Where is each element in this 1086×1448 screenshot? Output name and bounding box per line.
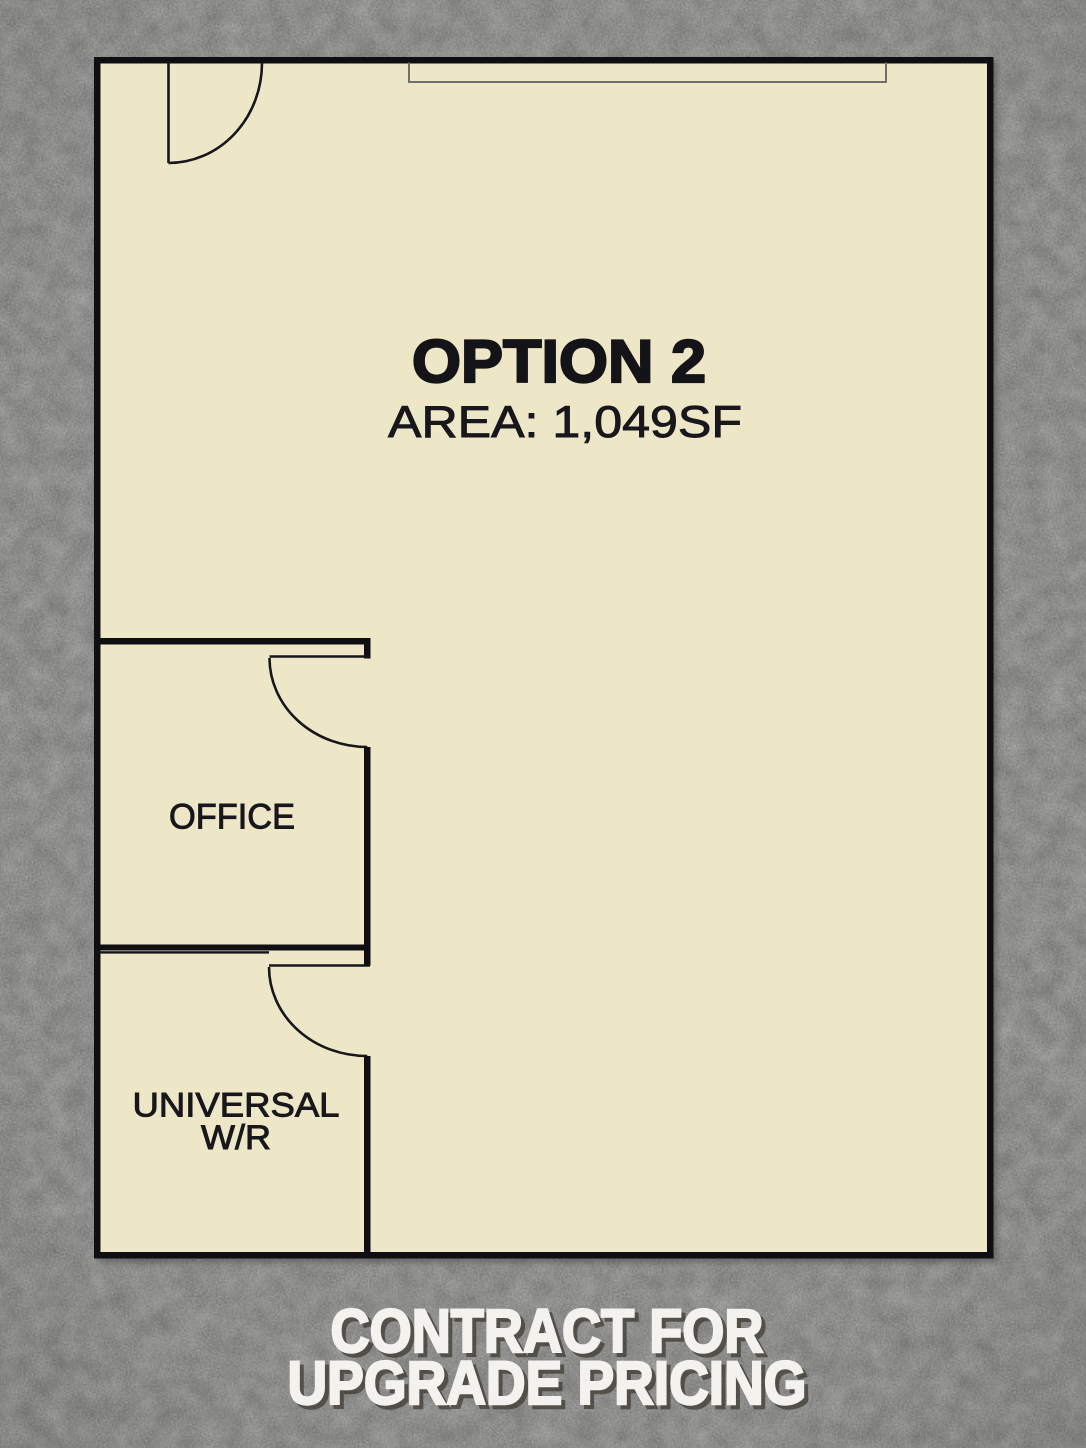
svg-text:OPTION 2: OPTION 2 xyxy=(412,328,706,395)
svg-text:W/R: W/R xyxy=(201,1119,271,1157)
svg-text:OFFICE: OFFICE xyxy=(169,798,295,837)
svg-text:AREA: 1,049SF: AREA: 1,049SF xyxy=(388,398,742,447)
svg-text:UPGRADE PRICING: UPGRADE PRICING xyxy=(288,1349,807,1417)
